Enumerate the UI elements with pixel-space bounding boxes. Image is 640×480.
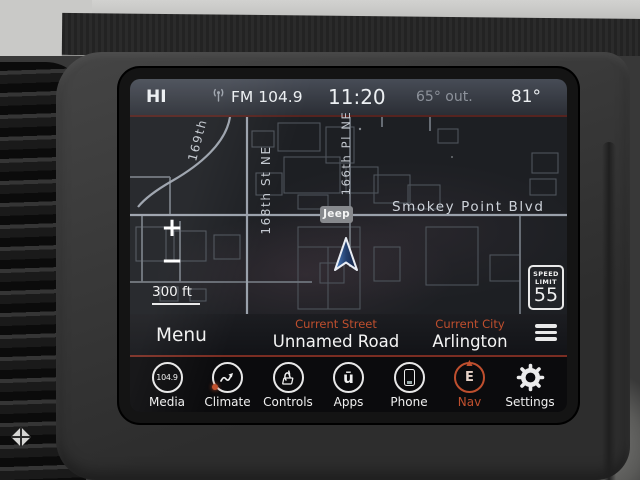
menu-button[interactable]: Menu	[156, 325, 207, 346]
media-station-icon: 104.9	[152, 362, 183, 393]
speed-limit-value: 55	[530, 286, 562, 306]
radio-station-label: FM 104.9	[231, 88, 303, 106]
outside-temperature: 65° out.	[416, 89, 473, 105]
nav-item-climate[interactable]: Climate	[199, 362, 257, 412]
climate-wave-icon	[212, 362, 243, 393]
speed-limit-word-1: SPEED	[530, 270, 562, 278]
diamond-vent-icon	[10, 426, 32, 448]
vehicle-position-arrow	[333, 236, 359, 274]
map-scale-bar	[152, 303, 200, 305]
current-street-value: Unnamed Road	[248, 332, 424, 351]
uconnect-icon: ū	[333, 362, 364, 393]
nav-item-controls[interactable]: Controls	[259, 362, 317, 412]
hamburger-menu-icon[interactable]	[535, 324, 557, 344]
map-scale: 300 ft	[152, 284, 200, 305]
speed-limit-sign: SPEED LIMIT 55	[528, 265, 564, 310]
cabin-temperature: 81°	[511, 87, 541, 107]
clock: 11:20	[328, 85, 386, 109]
navigation-map[interactable]: 169th 168th St NE 166th Pl NE Smokey Poi…	[130, 117, 567, 314]
map-zoom-out-button[interactable]: −	[158, 248, 186, 274]
bottom-nav-bar: 104.9 Media Climate Contr	[130, 357, 567, 412]
compass-icon: ▲ E	[454, 362, 485, 393]
nav-item-phone[interactable]: Phone	[380, 362, 438, 412]
gear-icon	[515, 362, 546, 393]
street-label-166th-pl-ne: 166th Pl NE	[339, 107, 353, 199]
nav-item-media[interactable]: 104.9 Media	[138, 362, 196, 412]
phone-icon	[394, 362, 425, 393]
infotainment-screen: HI FM 104.9 11:20 65° out. 81°	[130, 79, 567, 412]
nav-item-settings[interactable]: Settings	[501, 362, 559, 412]
jeep-logo-badge: Jeep	[320, 206, 353, 223]
current-city-group: Current City Arlington	[412, 317, 528, 351]
current-city-label: Current City	[412, 317, 528, 331]
nav-item-nav[interactable]: ▲ E Nav	[441, 362, 499, 412]
radio-antenna-icon	[210, 88, 227, 103]
climate-status-dot	[212, 384, 218, 390]
media-frequency: 104.9	[156, 373, 177, 382]
street-label-168th-st-ne: 168th St NE	[259, 140, 273, 240]
current-street-group: Current Street Unnamed Road	[248, 317, 424, 351]
compass-needle: ▲	[466, 358, 472, 367]
hand-controls-icon	[273, 362, 304, 393]
current-city-value: Arlington	[412, 332, 528, 351]
bezel-groove	[602, 142, 616, 480]
current-street-label: Current Street	[248, 317, 424, 331]
map-scale-label: 300 ft	[152, 284, 192, 300]
nav-item-apps[interactable]: ū Apps	[320, 362, 378, 412]
hvac-mode-indicator: HI	[146, 87, 167, 107]
info-bar: Menu Current Street Unnamed Road Current…	[130, 314, 567, 355]
map-zoom-in-button[interactable]: +	[158, 215, 186, 241]
street-label-smokey-point-blvd: Smokey Point Blvd	[392, 199, 544, 215]
